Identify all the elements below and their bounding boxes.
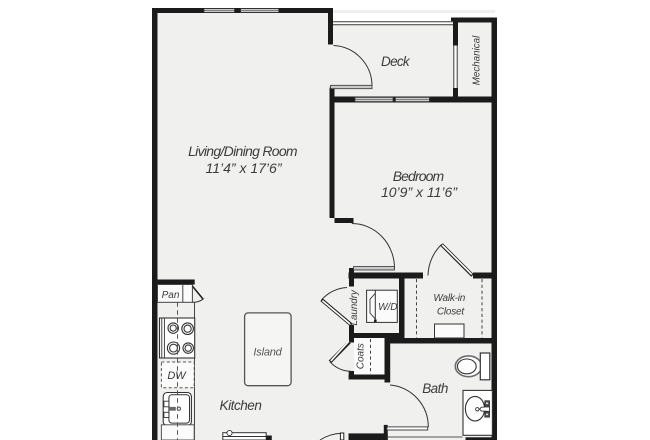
svg-text:Walk-in: Walk-in	[433, 293, 465, 304]
svg-text:Deck: Deck	[381, 54, 411, 69]
svg-text:DW: DW	[167, 370, 187, 382]
svg-text:Pan: Pan	[162, 290, 180, 301]
svg-text:10’9” x 11’6”: 10’9” x 11’6”	[381, 184, 458, 200]
svg-text:Laundry: Laundry	[349, 289, 360, 326]
svg-text:Kitchen: Kitchen	[220, 398, 262, 413]
svg-text:Living/Dining Room: Living/Dining Room	[188, 143, 298, 159]
svg-text:Island: Island	[253, 347, 282, 359]
svg-text:Bath: Bath	[422, 381, 448, 396]
svg-text:Coats: Coats	[356, 343, 367, 369]
svg-text:Closet: Closet	[437, 307, 466, 318]
svg-text:11’4” x 17’6”: 11’4” x 17’6”	[205, 160, 282, 176]
svg-text:Mechanical: Mechanical	[472, 35, 483, 85]
svg-text:Bedroom: Bedroom	[393, 168, 445, 184]
svg-text:W/D: W/D	[378, 302, 397, 313]
